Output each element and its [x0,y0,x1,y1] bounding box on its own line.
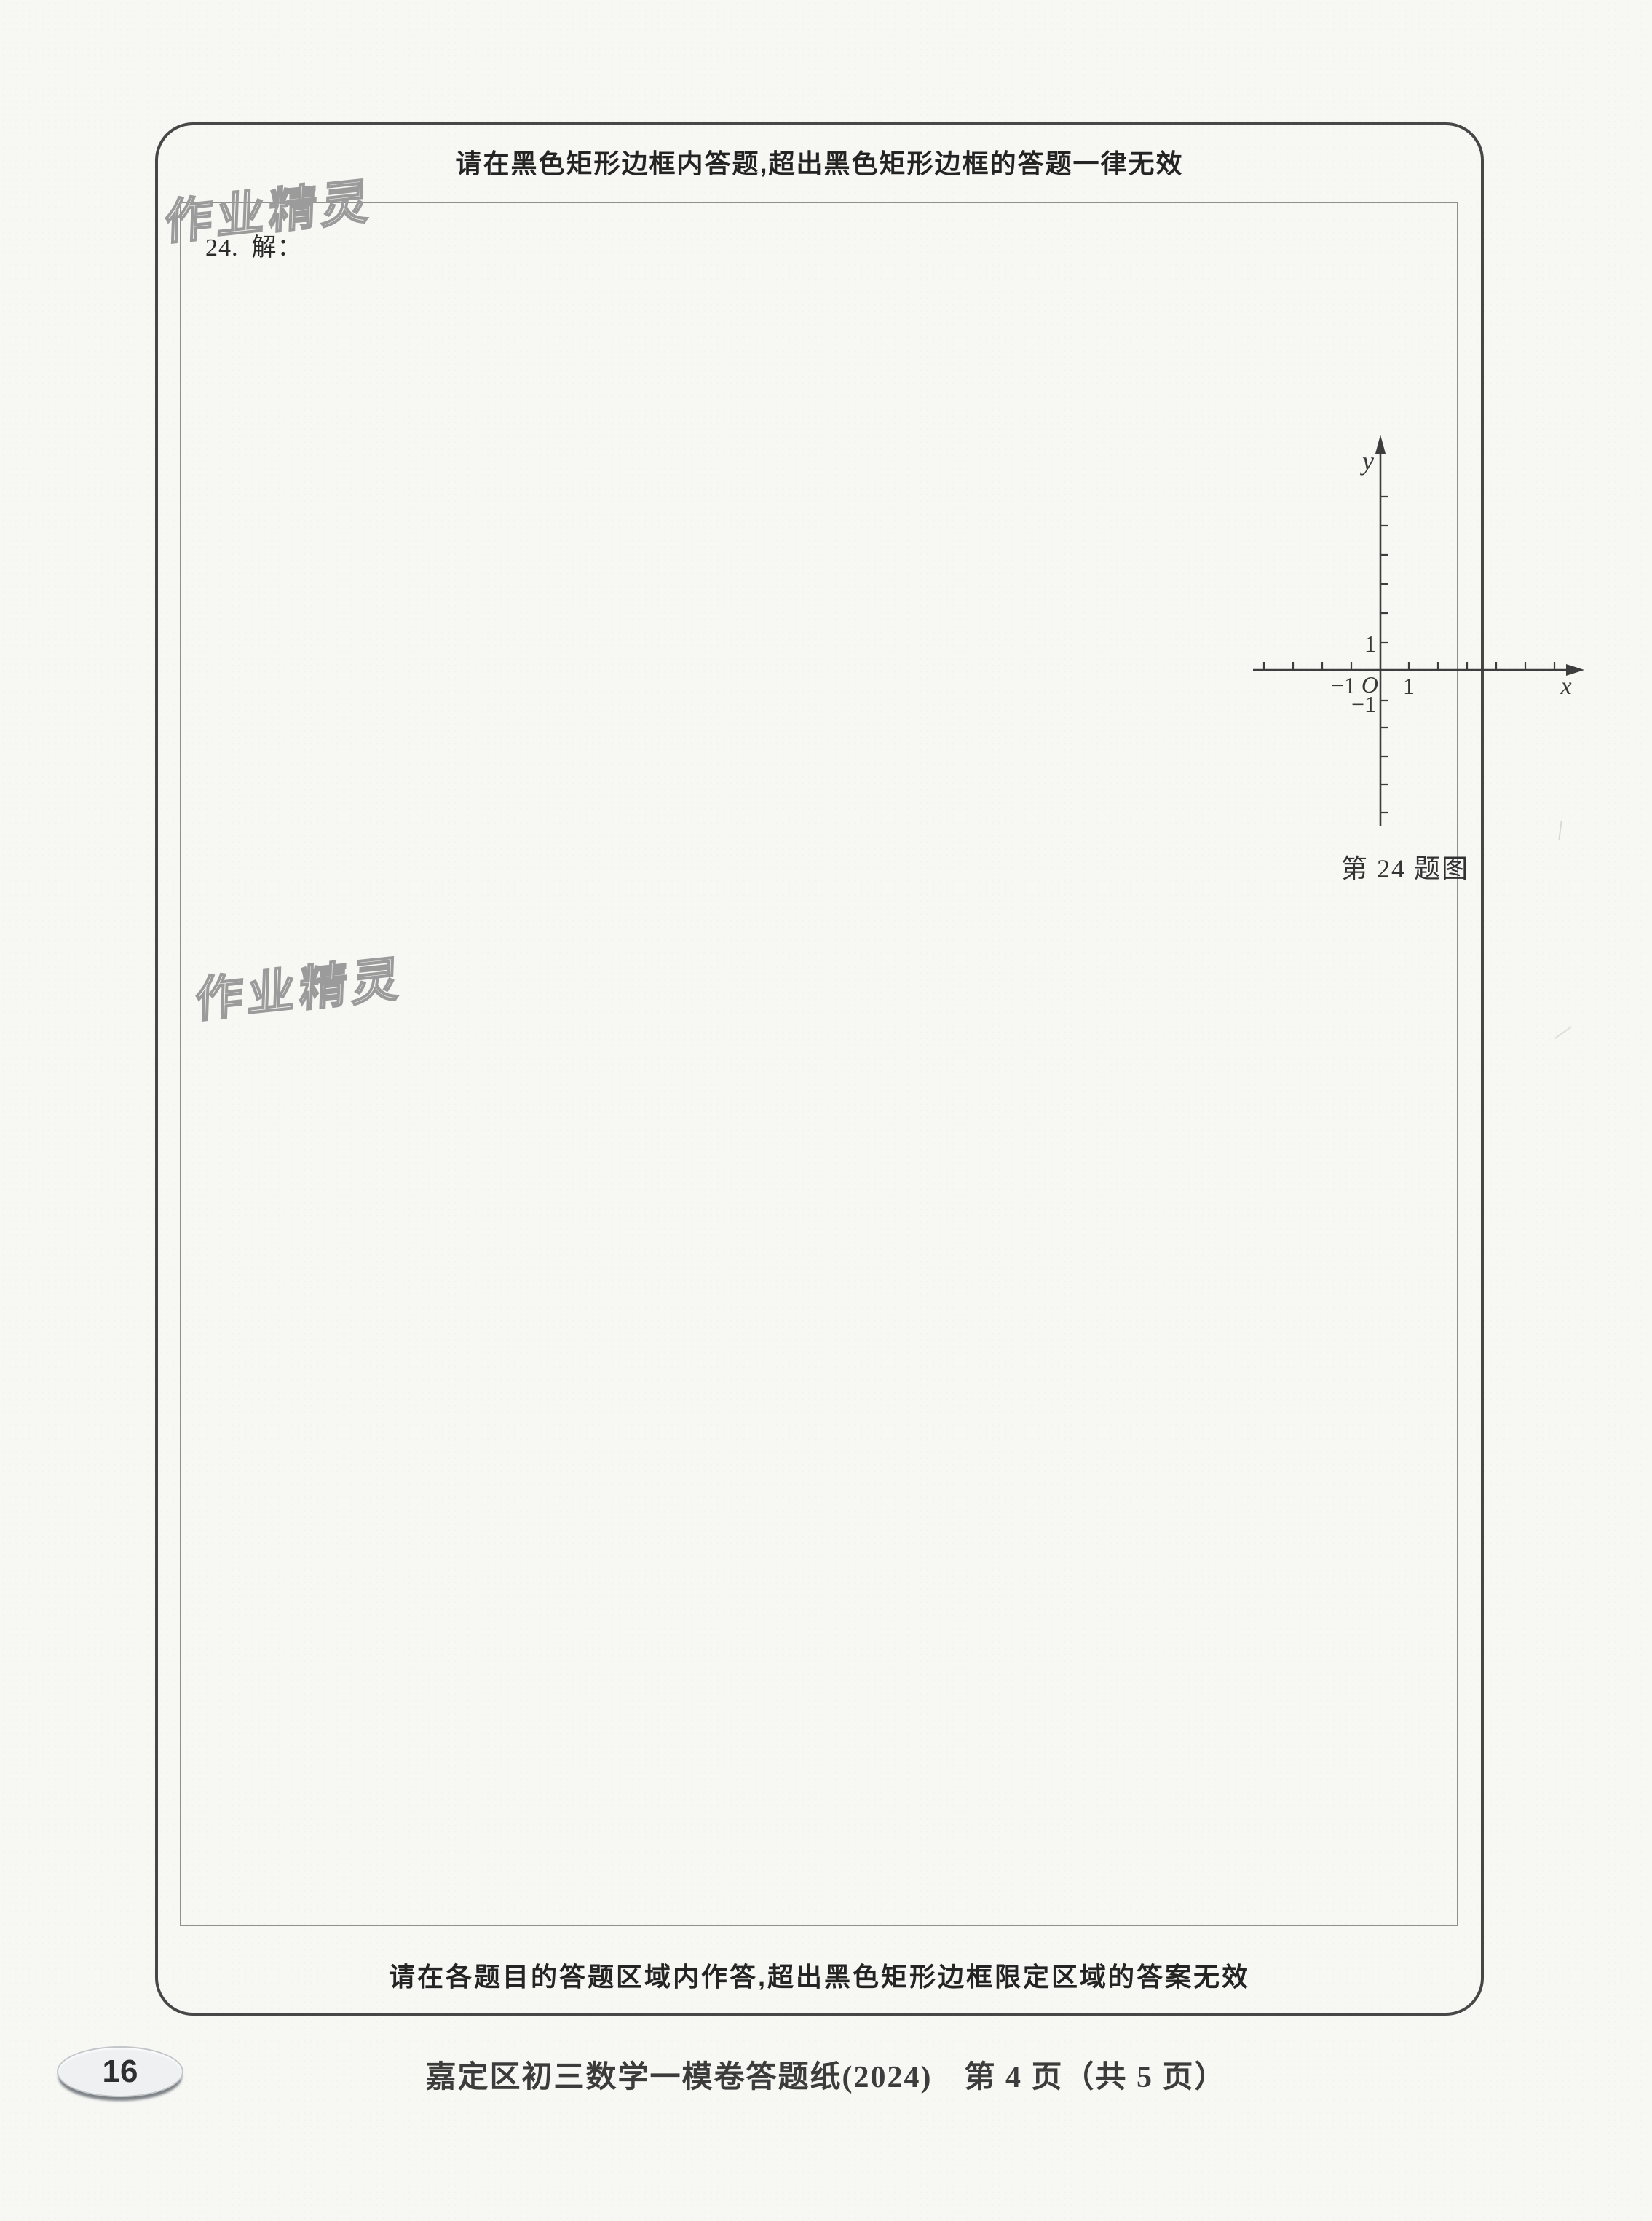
footer-caption: 嘉定区初三数学一模卷答题纸(2024) 第 4 页（共 5 页） [0,2052,1652,2096]
y-axis-ticks [1380,497,1388,813]
bottom-instruction-text: 请在各题目的答题区域内作答,超出黑色矩形边框限定区域的答案无效 [158,1956,1481,1994]
tick-label-y-pos1: 1 [1364,631,1376,657]
answer-border-box: 请在黑色矩形边框内答题,超出黑色矩形边框的答题一律无效 24.解： y x O … [155,122,1484,2016]
y-axis-label: y [1360,446,1374,476]
scan-artifact [1554,1026,1572,1039]
scanned-answer-sheet-page: 请在黑色矩形边框内答题,超出黑色矩形边框的答题一律无效 24.解： y x O … [0,0,1652,2221]
y-axis-arrow-icon [1375,435,1386,454]
answer-area: 24.解： y x O 1 −1 1 −1 第 24 [180,202,1458,1926]
x-axis-label: x [1560,673,1571,700]
x-axis-ticks [1264,662,1554,670]
tick-label-y-neg1: −1 [1351,691,1376,717]
coordinate-figure: y x O 1 −1 1 −1 [1230,422,1608,888]
tick-label-x-pos1: 1 [1403,673,1415,699]
figure-caption: 第 24 题图 [1341,848,1501,885]
